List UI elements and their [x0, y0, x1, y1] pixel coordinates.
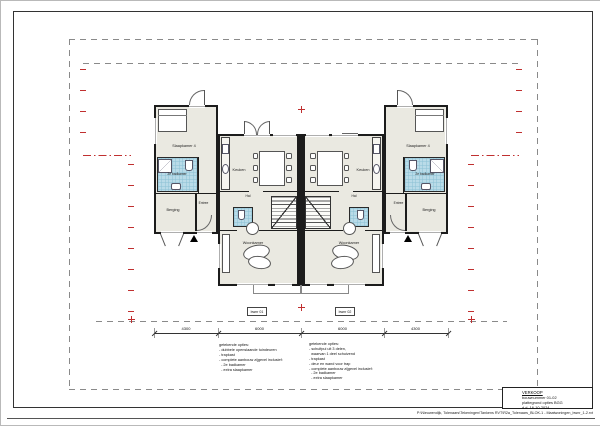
extension-mid-wall [154, 193, 218, 195]
options-note-left: getekende opties: - dubbele openslaande … [219, 343, 299, 372]
chair-icon [286, 177, 292, 183]
room-label-bathroom: 2e badkamer [159, 172, 195, 177]
sliding-door-panel [342, 133, 358, 134]
unit-left: Slaapkamer 4 2e badkamer Berging Entree [149, 86, 301, 286]
chair-icon [286, 165, 292, 171]
storage-door-leaf-right [178, 234, 184, 246]
bed-pillow-line [158, 115, 187, 116]
footer-rule [7, 418, 595, 419]
bed-icon [415, 109, 444, 132]
sideboard-icon [222, 234, 230, 273]
bathroom-wall [403, 157, 405, 193]
room-label-entry: Entree [195, 201, 212, 206]
room-label-bathroom: 2e badkamer [407, 172, 443, 177]
hall-living-wall [218, 230, 301, 232]
front-door-opening [197, 231, 212, 234]
options-note-right: getekende opties: - schuifpui uit 3 dele… [309, 342, 389, 381]
garden-door-arc-left-icon [244, 121, 257, 135]
plot-ticks-right-lower [468, 164, 474, 316]
plant-icon [343, 222, 356, 235]
room-label-bedroom: Slaapkamer 4 [396, 144, 440, 149]
rear-door-arc-icon [398, 90, 413, 105]
dimension-label: 6000 [240, 326, 280, 331]
wc-toilet-icon [238, 210, 245, 220]
plot-line-left-jog [83, 155, 131, 156]
unit-number-box-2: bwnr 02 [335, 307, 355, 316]
terrace-outline [253, 285, 301, 294]
toilet-icon [409, 160, 417, 171]
bedroom-window [154, 118, 157, 144]
chair-icon [311, 165, 317, 171]
plot-ticks-left-lower [128, 164, 134, 316]
title-block-date: d.d. 16-10-2024 [522, 405, 592, 410]
kitchen-sink-icon [373, 144, 380, 154]
storage-door-opening [161, 231, 183, 234]
plot-endmark-right [468, 316, 475, 323]
room-label-hall: Hal [239, 194, 257, 199]
rear-door-arc-icon [189, 90, 204, 105]
kitchen-sink-icon [222, 144, 229, 154]
storage-door-opening [419, 231, 441, 234]
dining-table-icon [259, 151, 285, 186]
chair-icon [311, 153, 317, 159]
toilet-icon [185, 160, 193, 171]
title-block: VERKOOP bouwnummer 01-02 plattegrond opt… [502, 387, 593, 409]
wc-toilet-icon [357, 210, 364, 220]
room-label-entry: Entree [390, 201, 407, 206]
room-label-kitchen: Keuken [350, 168, 376, 173]
unit-number-box-1: bwnr 01 [247, 307, 267, 316]
bed-pillow-line [415, 115, 444, 116]
dimension-label: 4300 [396, 326, 436, 331]
living-side-window [381, 244, 384, 268]
storage-door-leaf-right [418, 234, 424, 246]
file-path: P:\Nieuwendijk, Tolenaars\Tekeningen\Tan… [371, 411, 593, 415]
room-label-bedroom: Slaapkamer 4 [162, 144, 206, 149]
dining-table-icon [317, 151, 343, 186]
shower-icon [430, 159, 444, 173]
sliding-door-opening [332, 134, 358, 137]
shower-icon [158, 159, 172, 173]
chair-icon [286, 153, 292, 159]
chair-icon [311, 177, 317, 183]
plot-line-right-jog [471, 155, 519, 156]
entrance-marker-icon [190, 235, 198, 242]
room-label-storage: Berging [156, 208, 190, 213]
bed-icon [158, 109, 187, 132]
storage-entry-wall [406, 194, 408, 231]
rear-door-opening [397, 105, 413, 108]
room-label-storage: Berging [412, 208, 446, 213]
terrace-outline [301, 285, 349, 294]
hall-door-opening [249, 191, 263, 193]
dimension-label: 4300 [166, 326, 206, 331]
rear-door-leaf [204, 90, 205, 105]
chair-icon [344, 153, 350, 159]
chair-icon [253, 177, 259, 183]
plant-icon [246, 222, 259, 235]
bedroom-window [445, 118, 448, 144]
rear-door-opening [189, 105, 205, 108]
sink-icon [171, 183, 181, 190]
chair-icon [253, 153, 259, 159]
plot-ticks-right-upper [516, 69, 522, 153]
staircase-diagonal [305, 196, 331, 229]
garden-door-leaf-left [244, 121, 245, 134]
storage-door-leaf-left [160, 234, 166, 246]
garden-door-leaf-right [269, 121, 270, 134]
extension-mid-wall [384, 193, 448, 195]
rear-door-leaf [398, 90, 399, 105]
site-boundary-top [69, 39, 538, 40]
front-door-opening [390, 231, 405, 234]
plot-ticks-left-upper [80, 69, 86, 153]
plot-endmark-left [128, 316, 135, 323]
site-boundary-left [69, 39, 70, 390]
drawing-sheet: Slaapkamer 4 2e badkamer Berging Entree [0, 0, 600, 426]
entrance-marker-icon [404, 235, 412, 242]
site-boundary-right [537, 39, 538, 390]
site-boundary-bottom [69, 389, 538, 390]
room-label-kitchen: Keuken [226, 168, 252, 173]
room-label-hall: Hal [345, 194, 363, 199]
chair-icon [344, 177, 350, 183]
sink-icon [421, 183, 431, 190]
kitchen-window [273, 134, 296, 137]
sideboard-icon [373, 234, 381, 273]
living-side-window [218, 244, 221, 268]
dimension-label: 6000 [323, 326, 363, 331]
site-line-inner-bottom [96, 321, 507, 322]
staircase-diagonal [271, 196, 297, 229]
bathroom-wall [198, 157, 200, 193]
chair-icon [344, 165, 350, 171]
storage-door-leaf-left [436, 234, 442, 246]
kitchen-window [306, 134, 329, 137]
centerline-mark-bottom [298, 304, 305, 311]
chair-icon [253, 165, 259, 171]
hall-door-opening [339, 191, 353, 193]
unit-right: Slaapkamer 4 2e badkamer Berging Entree [301, 86, 453, 286]
